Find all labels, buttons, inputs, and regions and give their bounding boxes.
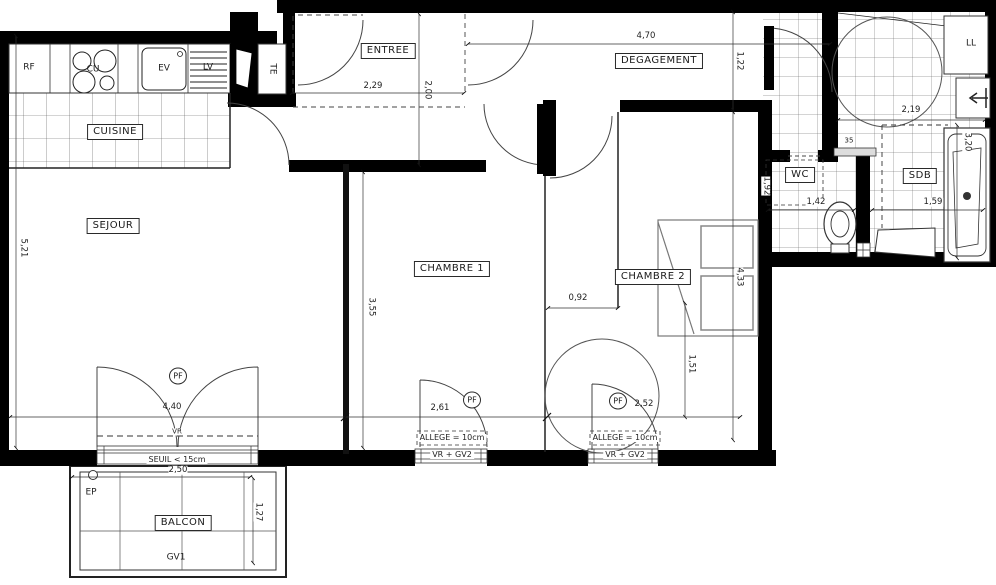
sink-label: EV bbox=[158, 65, 170, 74]
room-label-balcon: BALCON bbox=[155, 515, 212, 531]
seuil-note: SEUIL < 15cm bbox=[147, 456, 208, 464]
room-label-wc: WC bbox=[785, 167, 815, 183]
vrgv2-note-2: VR + GV2 bbox=[603, 451, 647, 459]
floor-plan: CUISINE SEJOUR ENTREE DEGAGEMENT CHAMBRE… bbox=[0, 0, 996, 585]
allege-note-1: ALLEGE = 10cm bbox=[418, 434, 487, 442]
room-label-chambre2: CHAMBRE 2 bbox=[615, 269, 691, 285]
pf-marker-chambre2: PF bbox=[609, 393, 627, 410]
doors bbox=[227, 14, 832, 178]
bathroom-door-leaf bbox=[764, 26, 774, 90]
dim-chambre2-wall: 1,51 bbox=[687, 355, 696, 374]
vr-label: VR bbox=[170, 429, 184, 436]
dishwasher-label: LV bbox=[203, 64, 213, 73]
allege-note-2: ALLEGE = 10cm bbox=[591, 434, 660, 442]
shelf-dim-label: 35 bbox=[845, 138, 854, 145]
washer-label: LL bbox=[966, 40, 976, 49]
dim-sdb-top: 2,19 bbox=[902, 106, 921, 115]
gv1-label: GV1 bbox=[167, 554, 186, 563]
washbasin-icon bbox=[875, 228, 935, 257]
floor-drain-icon bbox=[857, 243, 870, 257]
ep-label: EP bbox=[85, 489, 96, 498]
dim-entree-height: 2,00 bbox=[423, 81, 432, 100]
plan-linework bbox=[0, 0, 996, 585]
pf-marker-balcon: PF bbox=[169, 368, 187, 385]
room-label-cuisine: CUISINE bbox=[87, 124, 143, 140]
te-label: TE bbox=[268, 63, 277, 74]
hall-door-arc bbox=[468, 20, 533, 85]
dim-wc-height: 1,92 bbox=[762, 177, 771, 196]
vrgv2-note-1: VR + GV2 bbox=[430, 451, 474, 459]
entry-door-arc bbox=[298, 20, 363, 85]
chambre2-door-arc bbox=[550, 116, 612, 178]
pf-marker-chambre1: PF bbox=[463, 392, 481, 409]
washing-machine-icon bbox=[956, 78, 990, 118]
rainwater-pipe-icon bbox=[89, 471, 98, 480]
dim-chambre2-width: 2,52 bbox=[635, 400, 654, 409]
dim-sdb-right: 3,20 bbox=[963, 133, 972, 152]
chambre1-door-arc bbox=[484, 104, 545, 165]
room-label-sejour: SEJOUR bbox=[87, 218, 140, 234]
dim-sejour-width: 4,40 bbox=[163, 403, 182, 412]
dim-sdb-width: 1,59 bbox=[923, 198, 944, 207]
room-label-entree: ENTREE bbox=[361, 43, 416, 59]
shelf bbox=[834, 148, 876, 156]
dim-degagement-height: 1,22 bbox=[735, 52, 744, 71]
room-label-degagement: DEGAGEMENT bbox=[615, 53, 703, 69]
dim-wc-width: 1,42 bbox=[806, 198, 827, 207]
kitchen-counter bbox=[9, 44, 286, 94]
sejour-door-arc bbox=[227, 103, 289, 165]
dim-sejour-height: 5,21 bbox=[19, 239, 28, 258]
chambre1-door-leaf bbox=[537, 104, 548, 174]
dim-degagement-width: 4,70 bbox=[637, 32, 656, 41]
room-label-sdb: SDB bbox=[903, 168, 937, 184]
cooktop-label: CU bbox=[87, 66, 100, 75]
dim-chambre1-height: 3,55 bbox=[367, 298, 376, 317]
dim-balcon-depth: 1,27 bbox=[254, 503, 263, 522]
dim-chambre2-height: 4,33 bbox=[735, 268, 744, 287]
corner-cabinet-icon bbox=[230, 44, 258, 93]
dim-chambre1-width: 2,61 bbox=[431, 404, 450, 413]
dim-balcon-width: 2,50 bbox=[169, 466, 188, 475]
dim-entree-width: 2,29 bbox=[364, 82, 383, 91]
dim-chambre2-door: 0,92 bbox=[569, 294, 588, 303]
fridge-label: RF bbox=[23, 64, 34, 73]
room-label-chambre1: CHAMBRE 1 bbox=[414, 261, 490, 277]
